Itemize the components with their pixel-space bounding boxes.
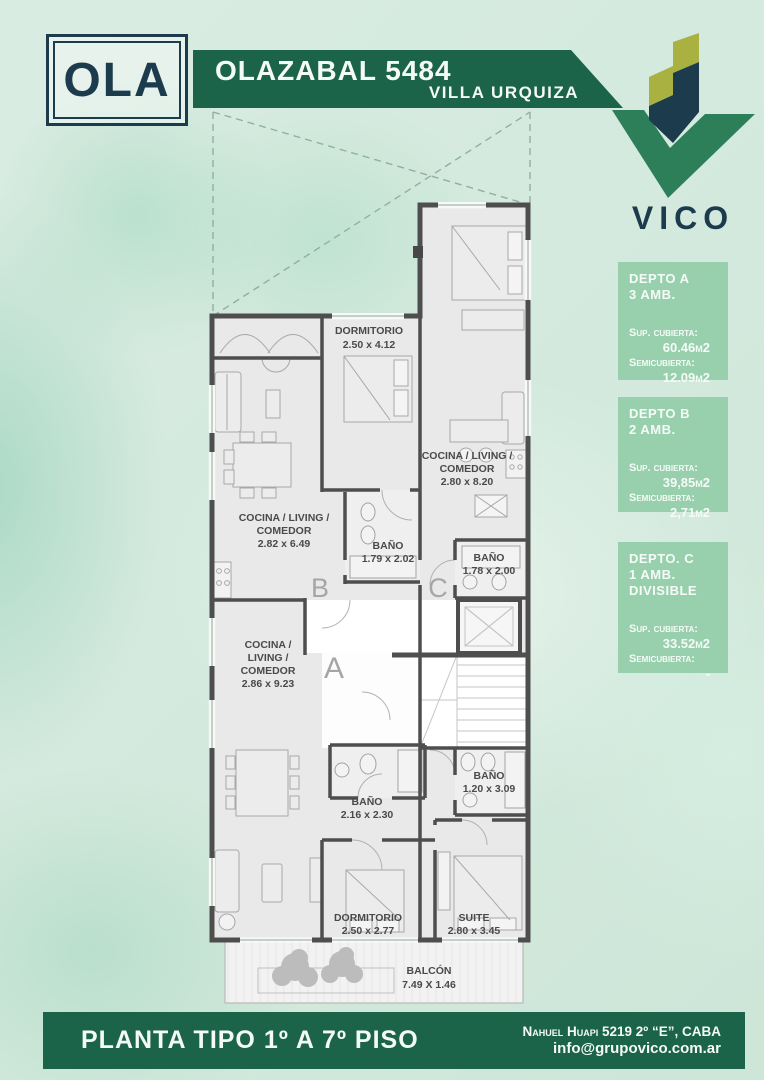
label-bano-suite-dims: 1.20 x 3.09 (463, 783, 516, 795)
label-living-a-dims: 2.86 x 9.23 (242, 678, 295, 690)
unit-letter-a: A (324, 652, 344, 685)
floor-range-title: PLANTA TIPO 1º A 7º PISO (81, 1026, 419, 1055)
vico-logo: VICO (606, 30, 760, 245)
unit-c-covered-label: Sup. cubierta: (629, 623, 720, 636)
label-dormitorio-a: DORMITORIO (334, 912, 402, 924)
ola-logo-inner-border: OLA (53, 41, 181, 119)
label-balcon-dims: 7.49 X 1.46 (402, 979, 456, 991)
label-bano-suite: BAÑO (474, 769, 505, 782)
unit-card-depto-b: DEPTO B 2 AMB. Sup. cubierta: 39,85m2 Se… (618, 397, 728, 512)
contact-block: Nahuel Huapi 5219 2º “E”, CABA info@grup… (523, 1023, 721, 1058)
unit-letter-b: B (311, 573, 329, 603)
unit-c-rooms: 1 AMB. (629, 567, 720, 583)
footer-bar: PLANTA TIPO 1º A 7º PISO Nahuel Huapi 52… (43, 1012, 745, 1069)
elevator (458, 600, 520, 653)
unit-c-divisible: DIVISIBLE (629, 583, 720, 599)
contact-address: Nahuel Huapi 5219 2º “E”, CABA (523, 1023, 721, 1040)
label-bano-a-dims: 2.16 x 2.30 (341, 809, 394, 821)
unit-c-name: DEPTO. C (629, 551, 720, 567)
unit-b-covered-label: Sup. cubierta: (629, 462, 720, 475)
unit-b-covered-value: 39,85m2 (629, 475, 720, 490)
unit-card-depto-a: DEPTO A 3 AMB. Sup. cubierta: 60.46m2 Se… (618, 262, 728, 380)
ola-logo-badge: OLA (46, 34, 188, 126)
label-bano-a: BAÑO (352, 795, 383, 808)
unit-card-depto-c: DEPTO. C 1 AMB. DIVISIBLE Sup. cubierta:… (618, 542, 728, 673)
label-bano-c: BAÑO (474, 551, 505, 564)
unit-c-covered-value: 33.52m2 (629, 636, 720, 651)
label-suite: SUITE (459, 912, 490, 924)
spacer (629, 303, 720, 325)
unit-a-semi-label: Semicubierta: (629, 357, 720, 370)
unit-a-rooms: 3 AMB. (629, 287, 720, 303)
label-living-b-dims: 2.82 x 6.49 (258, 538, 311, 550)
label-bano-b: BAÑO (373, 539, 404, 552)
label-living-a-2: LIVING / (248, 652, 289, 664)
ola-logo-text: OLA (63, 53, 170, 108)
neighborhood-subtitle: VILLA URQUIZA (429, 83, 579, 103)
label-living-b: COCINA / LIVING / (239, 512, 330, 524)
unit-a-name: DEPTO A (629, 271, 720, 287)
unit-a-covered-value: 60.46m2 (629, 340, 720, 355)
unit-a-covered-label: Sup. cubierta: (629, 327, 720, 340)
title-banner: OLAZABAL 5484 VILLA URQUIZA (193, 50, 623, 108)
unit-b-rooms: 2 AMB. (629, 422, 720, 438)
balcony (225, 941, 523, 1003)
label-bano-b-dims: 1.79 x 2.02 (362, 553, 415, 565)
spacer (629, 438, 720, 460)
label-dormitorio-a-dims: 2.50 x 2.77 (342, 925, 395, 937)
label-balcon: BALCÓN (407, 964, 452, 977)
vico-wordmark: VICO (606, 200, 760, 237)
label-living-a: COCINA / (245, 639, 292, 651)
unit-a-semi-value: 12.09m2 (629, 370, 720, 385)
unit-c-semi-label: Semicubierta: (629, 653, 720, 666)
unit-b-semi-value: 2,71m2 (629, 505, 720, 520)
project-title: OLAZABAL 5484 (193, 50, 623, 87)
unit-b-semi-label: Semicubierta: (629, 492, 720, 505)
spacer (629, 599, 720, 621)
unit-c-semi-value: - (629, 666, 720, 681)
contact-email: info@grupovico.com.ar (523, 1040, 721, 1058)
unit-b-name: DEPTO B (629, 406, 720, 422)
vico-logo-mark (606, 30, 760, 202)
label-living-c: COCINA / LIVING / (422, 450, 513, 462)
label-bano-c-dims: 1.78 x 2.00 (463, 565, 516, 577)
label-living-c-dims: 2.80 x 8.20 (441, 476, 494, 488)
flyer-poster: B C A DORMITORIO 2.50 x 4.12 COCINA / LI… (0, 0, 764, 1080)
label-dormitorio-b: DORMITORIO (335, 325, 403, 337)
label-dormitorio-b-dims: 2.50 x 4.12 (343, 339, 396, 351)
label-living-b-2: COMEDOR (257, 525, 312, 537)
label-suite-dims: 2.80 x 3.45 (448, 925, 501, 937)
label-living-a-3: COMEDOR (241, 665, 296, 677)
label-living-c-2: COMEDOR (440, 463, 495, 475)
unit-letter-c: C (428, 573, 448, 603)
